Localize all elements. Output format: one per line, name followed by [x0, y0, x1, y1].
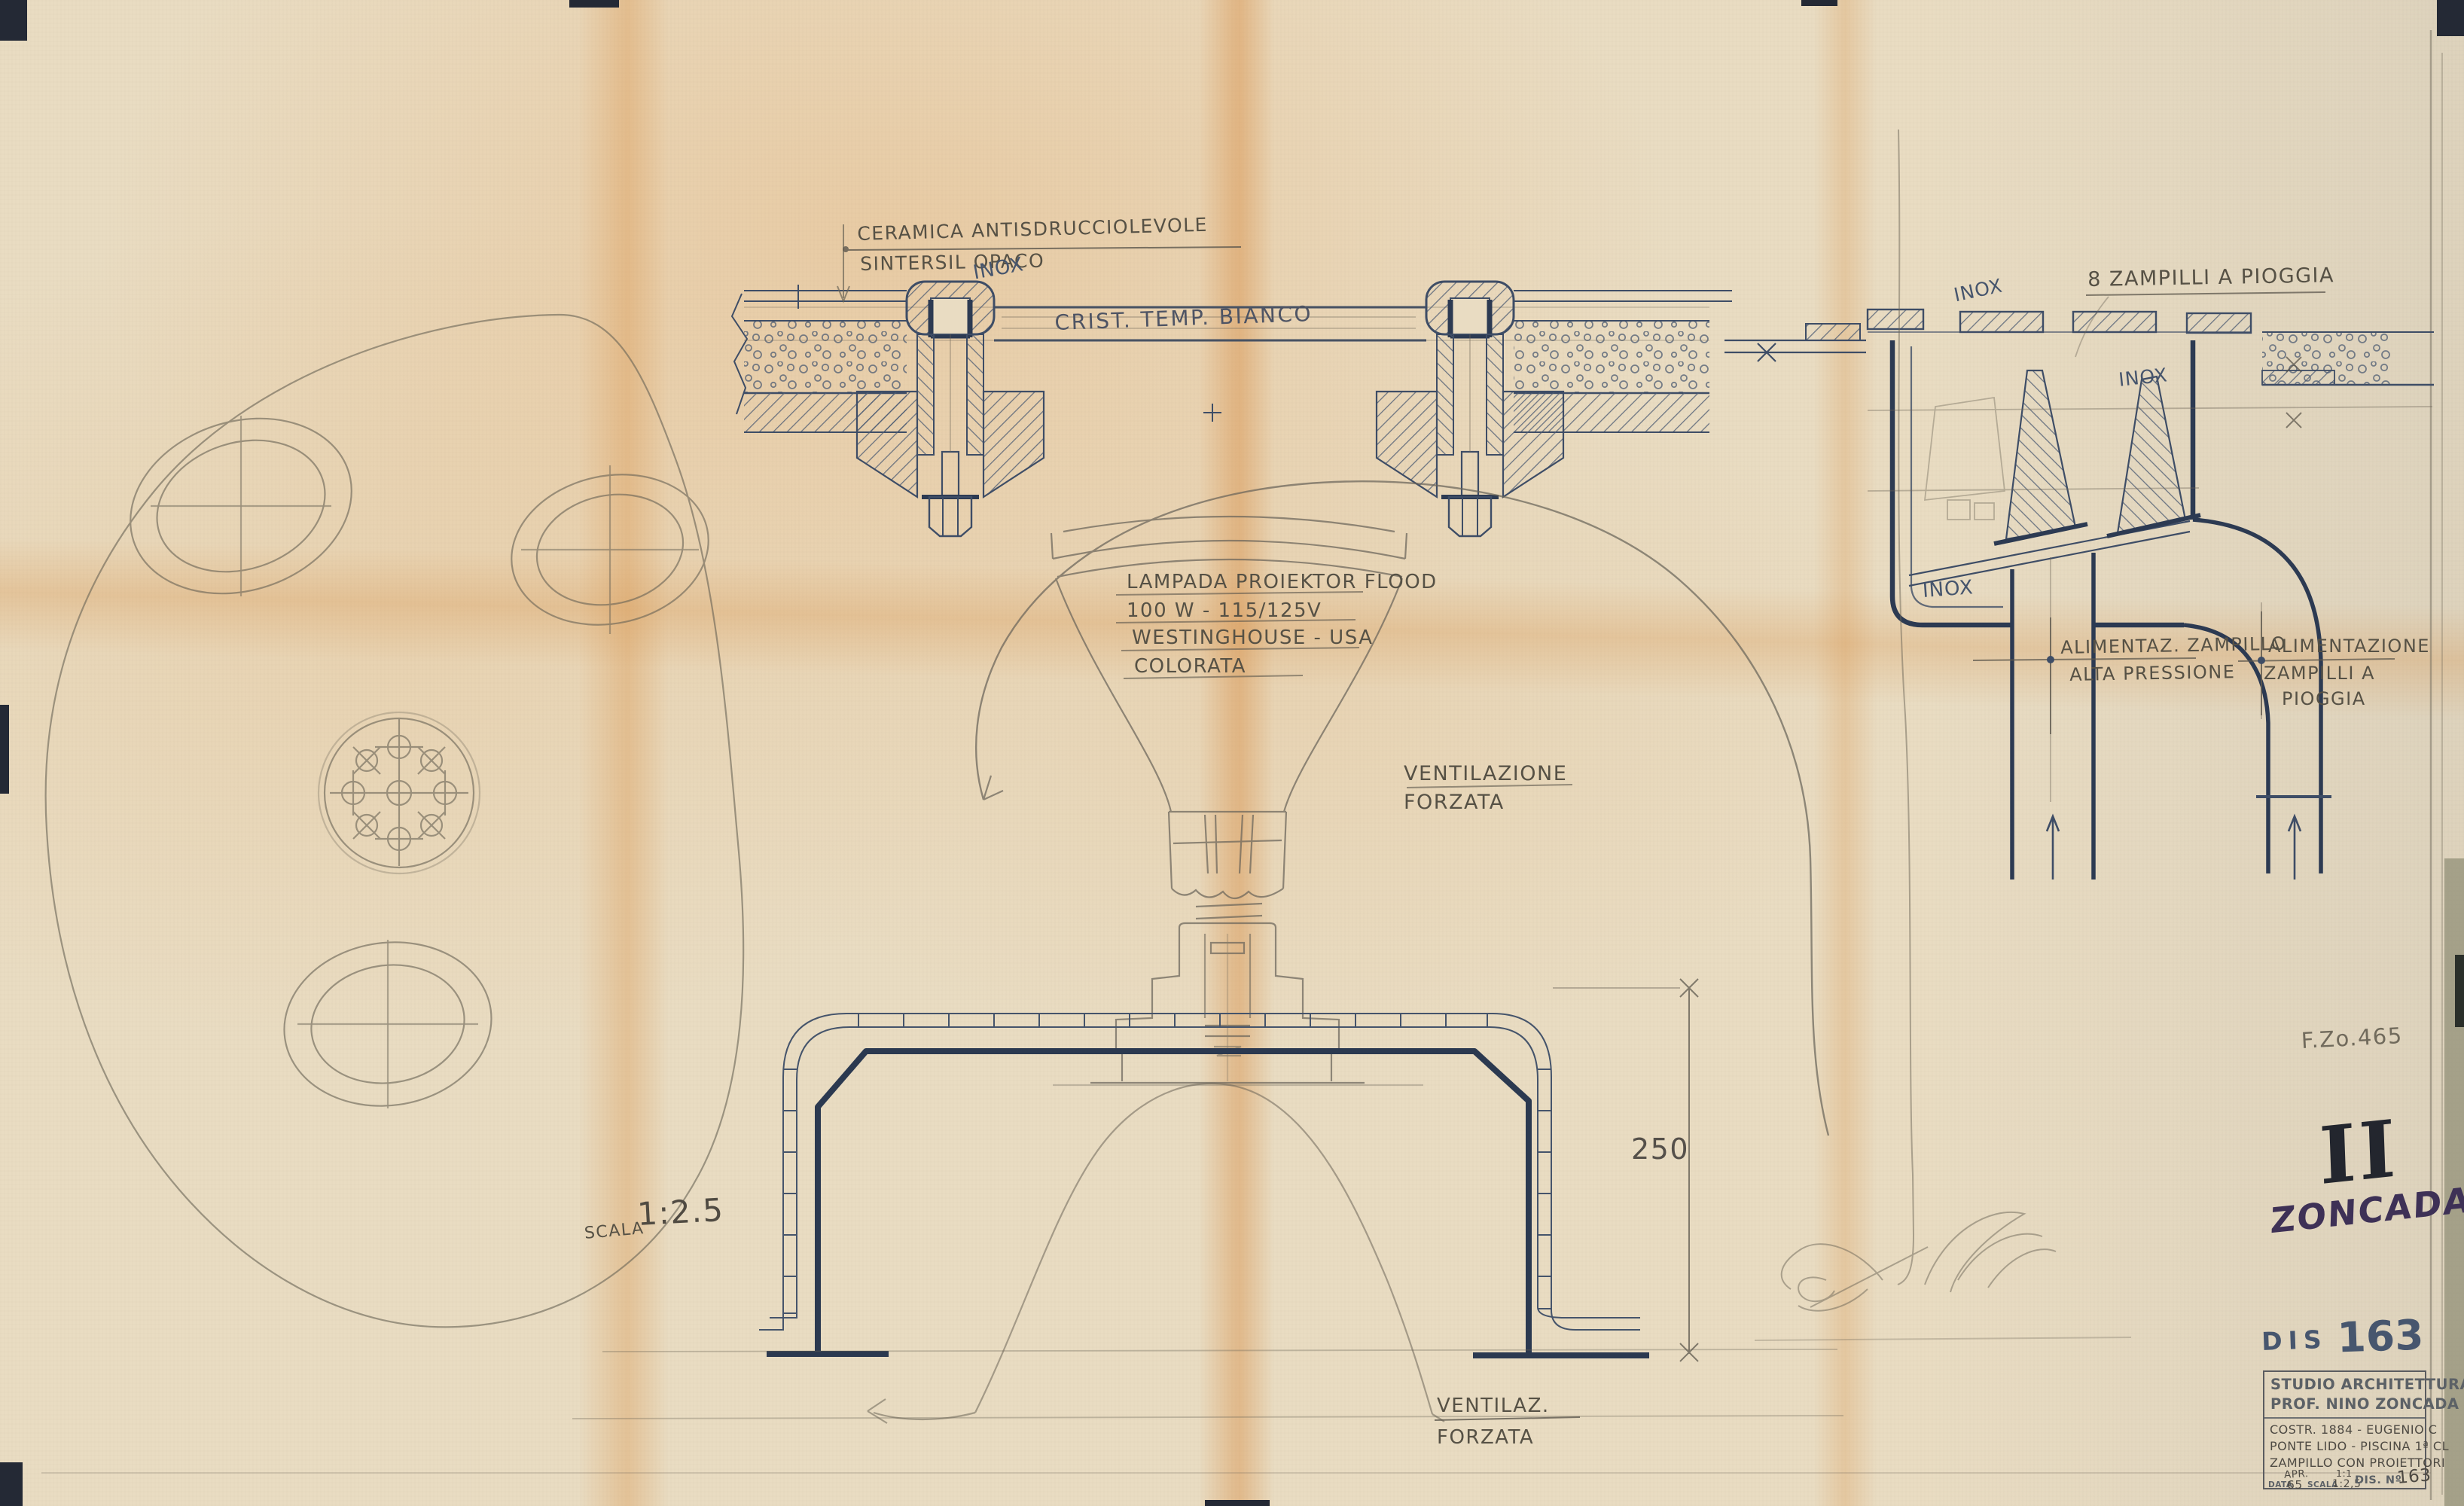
- dimension-250-label: 250: [1631, 1133, 1689, 1166]
- rain-jets-label: 8 ZAMPILLI A PIOGGIA: [2087, 264, 2334, 291]
- title-block-architect: PROF. NINO ZONCADA: [2270, 1395, 2459, 1413]
- dis-number-stamp: DIS 163: [2261, 1310, 2424, 1364]
- scale-value: 1:2.5: [636, 1191, 725, 1233]
- inox-label-bottom: INOX: [1922, 576, 1975, 602]
- feed-rain-line2: ZAMPILLI A: [2264, 663, 2375, 684]
- scanned-drawing-sheet: CERAMICA ANTISDRUCCIOLEVOLE SINTERSIL OP…: [0, 0, 2464, 1506]
- title-block-studio: STUDIO ARCHITETTURA: [2270, 1376, 2464, 1393]
- title-block-dis-value: 163: [2396, 1465, 2432, 1488]
- feed-rain-line1: ALIMENTAZIONE: [2268, 636, 2430, 657]
- drawing-linework: [0, 0, 2464, 1506]
- title-block: STUDIO ARCHITETTURA PROF. NINO ZONCADA C…: [2263, 1370, 2426, 1489]
- housing-section: [572, 979, 1843, 1423]
- title-block-divider: [2264, 1417, 2425, 1419]
- lamp-spec-line1: LAMPADA PROIEKTOR FLOOD: [1127, 571, 1438, 593]
- title-block-data-value2: 65: [2287, 1478, 2303, 1492]
- nozzle-plate-plan: [319, 712, 480, 873]
- title-block-desc1: COSTR. 1884 - EUGENIO C: [2270, 1422, 2437, 1437]
- title-block-desc2: PONTE LIDO - PISCINA 1ª CL: [2270, 1439, 2449, 1453]
- ventilaz-bottom-line2: FORZATA: [1437, 1426, 1534, 1449]
- dis-number: 163: [2336, 1310, 2424, 1361]
- ventilation-label-line1: VENTILAZIONE: [1404, 762, 1567, 785]
- housing-rib-ticks: [783, 1014, 1551, 1313]
- feed-rain-line3: PIOGGIA: [2282, 688, 2366, 709]
- pool-plan-sketch: [46, 315, 744, 1327]
- feed-jet-line2: ALTA PRESSIONE: [2069, 661, 2236, 685]
- ref-pencil-note: F.Zo.465: [2301, 1023, 2404, 1053]
- kidney-outline: [46, 315, 744, 1327]
- sheet-border-lines: [41, 30, 2442, 1500]
- lamp-spec-line4: COLORATA: [1134, 655, 1246, 678]
- dis-prefix: DIS: [2261, 1325, 2328, 1356]
- dimension-line-250: [1553, 979, 1698, 1361]
- housing-heavy-outline: [818, 1051, 1529, 1355]
- feed-jet-line1: ALIMENTAZ. ZAMPILLO: [2060, 633, 2286, 658]
- ventilation-label-line2: FORZATA: [1404, 791, 1505, 814]
- title-block-scala-value1: 1:1: [2336, 1468, 2353, 1479]
- lamp-spec-line3: WESTINGHOUSE - USA: [1132, 626, 1373, 649]
- lamp-spec-line2: 100 W - 115/125V: [1127, 599, 1322, 622]
- title-block-dis-label: DIS. Nº: [2355, 1474, 2401, 1486]
- ventilaz-bottom-line1: VENTILAZ.: [1437, 1395, 1550, 1417]
